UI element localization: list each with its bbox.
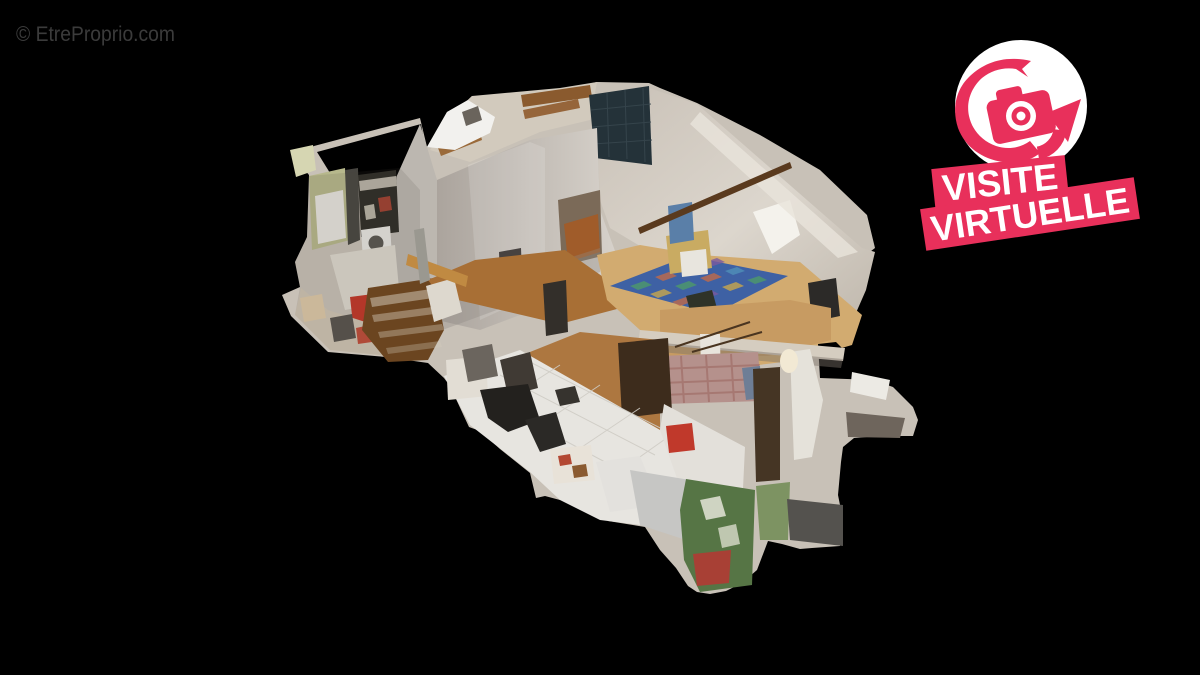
svg-text:© EtreProprio.com: © EtreProprio.com xyxy=(16,23,175,46)
